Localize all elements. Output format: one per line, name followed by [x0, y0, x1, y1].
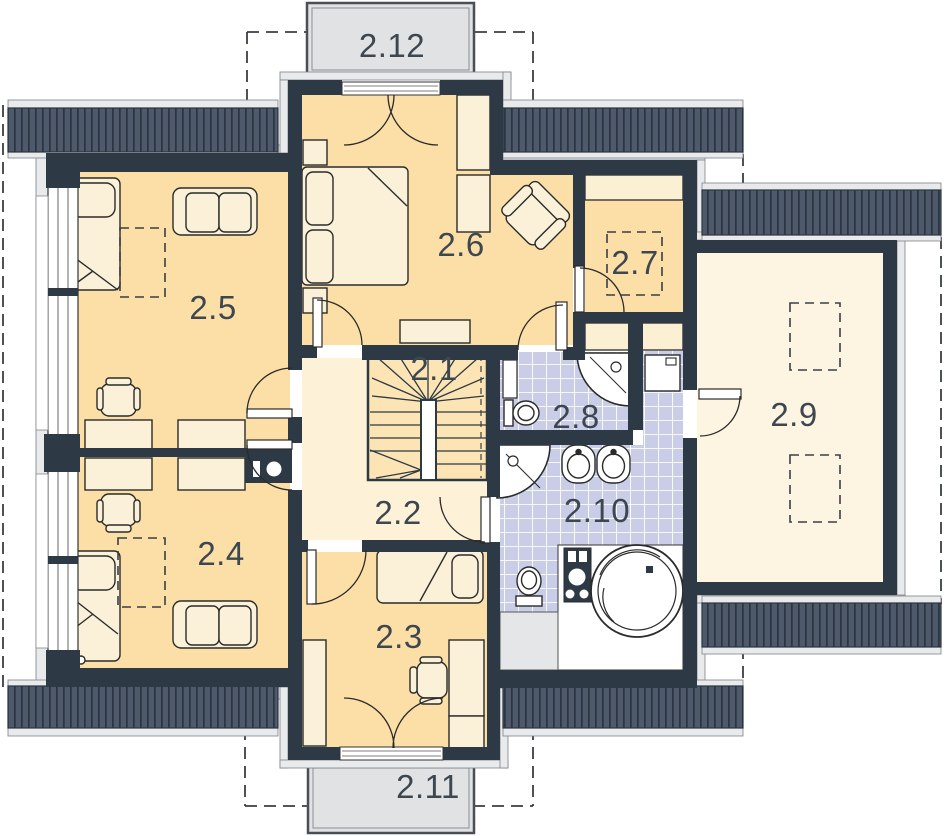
desk	[449, 640, 484, 716]
closet-shelf	[585, 175, 683, 200]
room-label-2-8: 2.8	[552, 398, 599, 435]
room-label-2-12: 2.12	[359, 27, 425, 64]
room-label-2-4: 2.4	[197, 535, 244, 572]
washer-cabinet	[645, 355, 680, 391]
dresser	[400, 320, 470, 343]
washbasin	[597, 445, 630, 483]
wall	[683, 438, 697, 688]
floor-plan-page: 2.1 2.2 2.3 2.4 2.5 2.6 2.7 2.8 2.9 2.10…	[0, 0, 945, 836]
wall	[487, 542, 500, 760]
stove	[564, 548, 591, 602]
washbasin	[562, 445, 595, 483]
wall	[490, 160, 697, 175]
wardrobe	[303, 640, 326, 746]
sofa	[173, 601, 257, 648]
room-label-2-5: 2.5	[189, 289, 236, 326]
wall	[683, 582, 897, 595]
desk	[85, 420, 152, 452]
wall	[487, 345, 500, 497]
wall	[288, 80, 302, 358]
wall	[46, 153, 80, 188]
wall	[288, 540, 302, 760]
chimney	[245, 455, 292, 483]
wall	[48, 153, 302, 172]
wardrobe	[457, 175, 490, 232]
bath-platform	[500, 612, 558, 670]
desk	[85, 458, 152, 490]
wall	[683, 240, 897, 253]
cabinet	[449, 716, 484, 748]
window-sill	[36, 196, 48, 430]
desk	[178, 420, 245, 452]
roof-hatch-bottom-right	[702, 596, 941, 654]
left-window-wall	[36, 153, 80, 687]
window-mullion	[48, 288, 78, 296]
roof-hatch-top-center	[503, 100, 743, 158]
wall	[573, 175, 585, 268]
nightstand	[303, 140, 327, 165]
wall	[580, 312, 683, 323]
roof-hatch-top-left	[8, 100, 278, 158]
room-label-2-7: 2.7	[611, 244, 658, 281]
toilet	[504, 400, 539, 426]
roof-hatch-bottom-center	[503, 680, 743, 736]
wall	[46, 650, 80, 687]
roof-hatch-top-right	[702, 183, 941, 241]
wall	[288, 80, 342, 95]
toilet	[516, 567, 542, 606]
wall	[48, 668, 302, 687]
wall	[443, 747, 500, 760]
window-mullion	[48, 556, 78, 564]
roof-hatch-bottom-left	[8, 680, 278, 736]
room-label-2-9: 2.9	[770, 396, 817, 433]
wall	[883, 240, 897, 595]
desk	[178, 458, 245, 490]
room-label-2-2: 2.2	[374, 494, 421, 531]
wall	[683, 175, 697, 390]
stair-handrail	[421, 400, 436, 480]
wall	[44, 434, 80, 472]
wall	[628, 323, 643, 430]
floor-plan-drawing: 2.1 2.2 2.3 2.4 2.5 2.6 2.7 2.8 2.9 2.10…	[0, 0, 945, 836]
room-label-2-6: 2.6	[437, 226, 484, 263]
room-label-2-3: 2.3	[375, 618, 422, 655]
sofa	[173, 188, 257, 235]
window-band	[48, 172, 78, 670]
single-bed	[377, 550, 483, 603]
wardrobe	[457, 95, 490, 170]
room-label-2-11: 2.11	[396, 768, 460, 805]
room-label-2-10: 2.10	[564, 492, 630, 529]
window-sill	[36, 474, 48, 648]
wall	[288, 747, 340, 760]
room-label-2-1: 2.1	[410, 350, 457, 387]
round-bathtub	[591, 545, 683, 637]
door-leaf	[503, 360, 517, 398]
wall	[288, 490, 302, 540]
double-bed	[302, 167, 408, 285]
wall	[288, 417, 302, 443]
wall	[487, 670, 697, 688]
wall	[362, 540, 487, 552]
